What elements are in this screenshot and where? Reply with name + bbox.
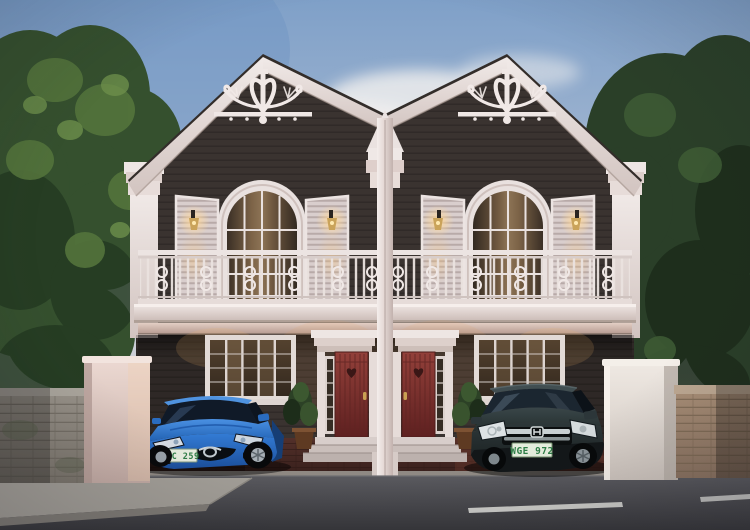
rendered-scene: MIC 259 WGE 972 — [0, 0, 750, 530]
duplex-house-illustration: MIC 259 WGE 972 — [0, 0, 750, 530]
vignette-overlay — [0, 0, 750, 530]
